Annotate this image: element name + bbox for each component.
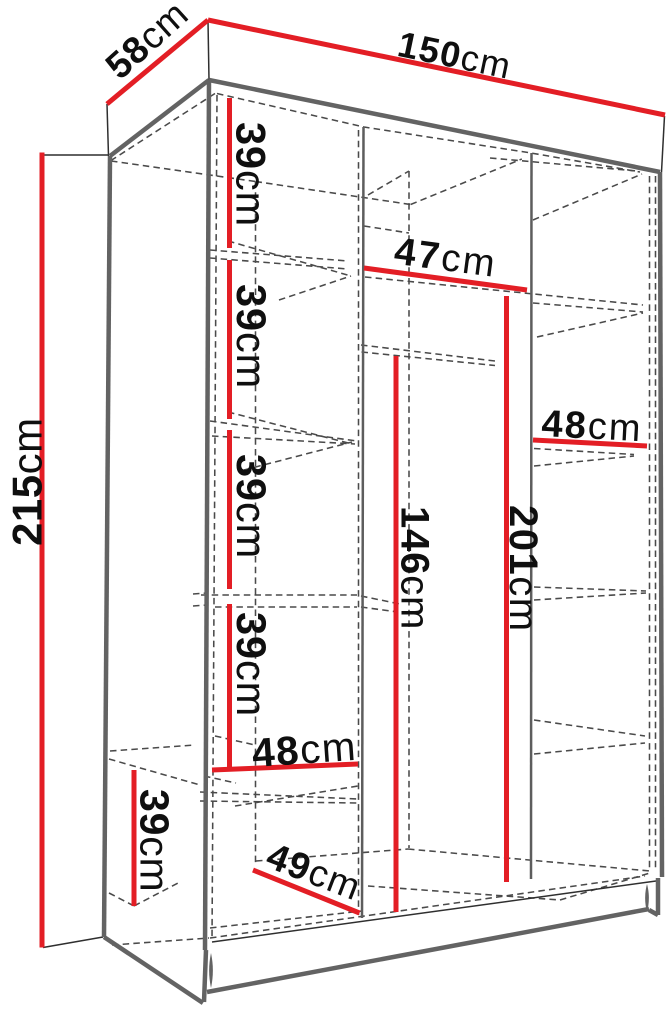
svg-text:146cm: 146cm xyxy=(393,506,437,630)
svg-text:39cm: 39cm xyxy=(228,284,275,389)
svg-text:201cm: 201cm xyxy=(501,505,545,633)
svg-text:48cm: 48cm xyxy=(250,723,358,776)
svg-text:39cm: 39cm xyxy=(228,454,275,559)
svg-text:215cm: 215cm xyxy=(4,417,51,546)
svg-text:39cm: 39cm xyxy=(132,789,178,892)
svg-text:39cm: 39cm xyxy=(228,612,275,717)
svg-text:39cm: 39cm xyxy=(228,122,275,227)
svg-text:48cm: 48cm xyxy=(541,403,644,450)
